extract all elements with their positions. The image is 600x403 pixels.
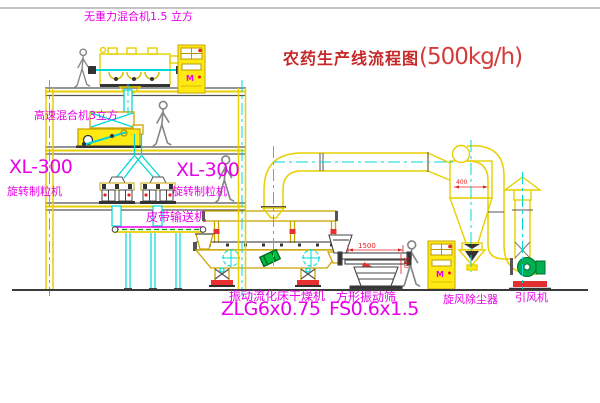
floor-beam-2 xyxy=(45,147,246,154)
gravity-free-mixer xyxy=(88,48,188,94)
floor-beam-3 xyxy=(45,203,246,210)
granulator-2 xyxy=(140,177,176,204)
fluid-bed-dryer xyxy=(193,211,343,287)
dryer-foot-1 xyxy=(209,268,235,287)
cyclone-inlet-cone xyxy=(428,153,452,181)
induced-draft-fan xyxy=(509,258,551,289)
label-belt-conveyor: 皮带输送机 xyxy=(146,211,206,223)
control-cabinet-top xyxy=(178,45,205,93)
dim-cyclone-body: 400 xyxy=(456,179,468,186)
title-capacity: (500kg/h) xyxy=(419,44,522,70)
label-xl300-right: XL-300 xyxy=(176,161,239,180)
belt-conveyor xyxy=(112,227,206,290)
cad-flow-diagram: M xyxy=(0,0,600,403)
label-gravity-mixer: 无重力混合机1.5 立方 xyxy=(84,11,193,22)
title-text: 农药生产线流程图 xyxy=(283,49,419,68)
label-fan: 引风机 xyxy=(515,292,548,303)
label-dryer-model: ZLG6x0.75 xyxy=(221,300,320,319)
granulator-1 xyxy=(99,177,135,204)
label-granulator-left: 旋转制粒机 xyxy=(7,186,62,197)
roof-beam xyxy=(45,88,246,96)
dim-screen-height: 550 xyxy=(402,257,409,269)
hood-posts xyxy=(214,221,337,243)
page-title: 农药生产线流程图(500kg/h) xyxy=(283,44,522,70)
person-figure-roof xyxy=(75,49,90,87)
label-granulator-right: 旋转制粒机 xyxy=(172,186,227,197)
dryer-foot-2 xyxy=(295,268,321,287)
exhaust-duct xyxy=(261,153,428,218)
conveyor-legs xyxy=(126,233,180,288)
control-cabinet-right xyxy=(428,241,455,289)
label-speed-mixer: 高速混合机3立方 xyxy=(34,110,118,121)
label-xl300-left: XL-300 xyxy=(9,158,72,177)
person-figure-floor2 xyxy=(153,101,170,146)
deck-bolts xyxy=(208,244,333,247)
label-screen-model: FS0.6x1.5 xyxy=(329,300,419,319)
label-cyclone: 旋风除尘器 xyxy=(443,294,498,305)
granulator-chute-1 xyxy=(112,206,121,226)
dim-screen-length: 1500 xyxy=(358,242,376,250)
